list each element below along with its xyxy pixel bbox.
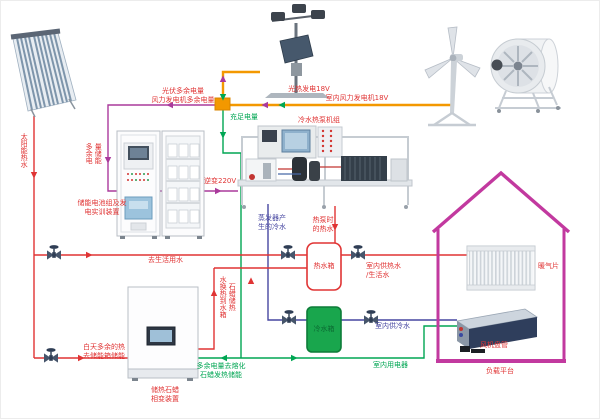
gate-valve-icon xyxy=(44,348,58,363)
gate-valve-icon xyxy=(47,245,61,260)
energy-system-diagram: 光伏多余电量 风力发电机多余电量 充足电量 光热发电18V 室内风力发电机18V… xyxy=(0,0,600,419)
solar-tracker-lamp-image xyxy=(265,4,329,98)
battery-cabinets-image xyxy=(117,131,204,239)
orange-power-bus xyxy=(223,72,452,105)
blue-cold-water-pipes xyxy=(268,204,457,320)
red-hot-water-pipes xyxy=(34,116,467,358)
wind-turbine-image xyxy=(425,27,480,125)
solar-collector-image xyxy=(11,31,76,117)
heat-pump-unit-image xyxy=(238,126,412,209)
radiator-image xyxy=(467,246,535,290)
gate-valve-icon xyxy=(281,245,295,260)
power-junction-box xyxy=(215,98,230,110)
hot-water-tank xyxy=(307,243,341,290)
cold-water-tank xyxy=(307,307,341,352)
gate-valve-icon xyxy=(282,310,296,325)
diagram-canvas xyxy=(1,1,600,419)
fan-coil-image xyxy=(457,309,537,353)
paraffin-storage-image xyxy=(128,287,198,381)
gate-valve-icon xyxy=(351,245,365,260)
wind-tunnel-fan-image xyxy=(491,39,561,113)
gate-valve-icon xyxy=(364,310,378,325)
